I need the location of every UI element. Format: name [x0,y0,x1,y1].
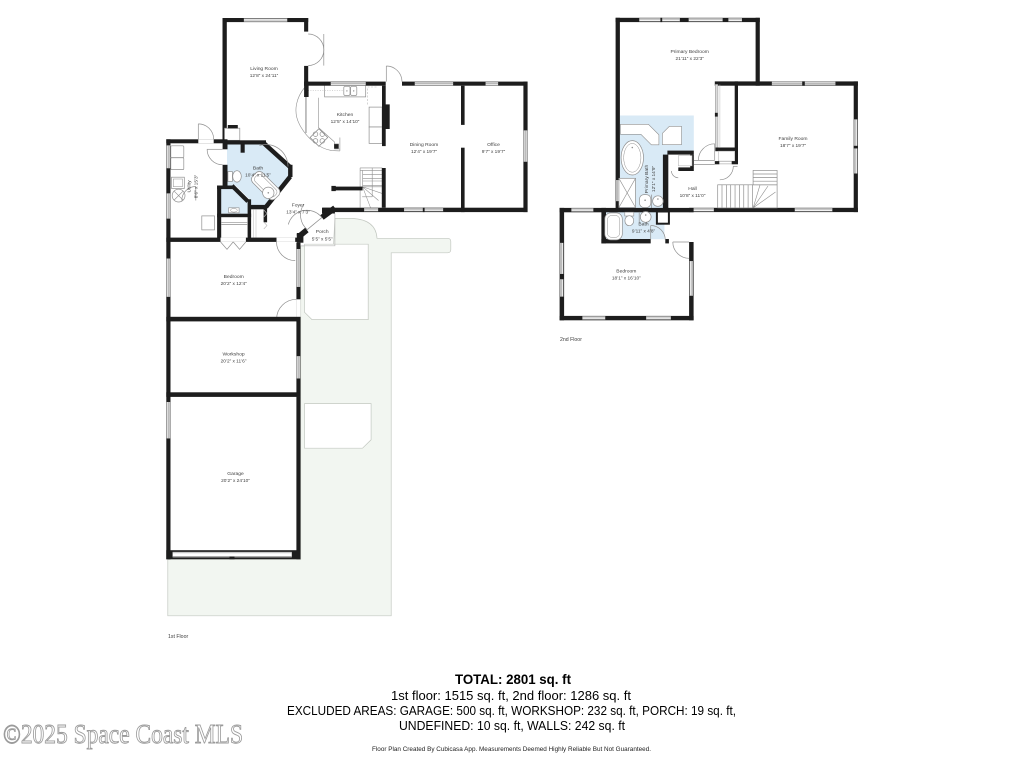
svg-text:21’11” x 22’3”: 21’11” x 22’3” [675,56,704,62]
svg-text:Office: Office [487,142,500,148]
svg-text:Utility: Utility [187,180,193,193]
svg-text:8’6” x 15’3”: 8’6” x 15’3” [194,174,200,198]
svg-text:1st Floor: 1st Floor [168,634,188,640]
svg-text:Foyer: Foyer [292,203,305,209]
svg-text:UNDEFINED: 10 sq. ft, WALLS: 2: UNDEFINED: 10 sq. ft, WALLS: 242 sq. ft [399,718,625,733]
svg-text:©2025 Space Coast MLS: ©2025 Space Coast MLS [3,719,243,749]
svg-text:9’11” x 4’8”: 9’11” x 4’8” [632,228,656,234]
svg-text:13’4” x 7’3”: 13’4” x 7’3” [286,210,310,216]
svg-text:Hall: Hall [688,186,697,192]
svg-text:Primary Bath: Primary Bath [644,164,650,193]
svg-text:TOTAL: 2801 sq. ft: TOTAL: 2801 sq. ft [455,672,572,687]
svg-text:Porch: Porch [316,229,329,235]
svg-text:20’2” x 12’4”: 20’2” x 12’4” [221,281,248,287]
svg-text:12’4” x 19’7”: 12’4” x 19’7” [411,149,438,155]
svg-text:Workshop: Workshop [222,352,244,358]
svg-text:2nd Floor: 2nd Floor [560,337,582,343]
svg-text:Bath: Bath [638,221,648,227]
svg-text:18’1” x 16’10”: 18’1” x 16’10” [612,275,641,281]
svg-text:Living Room: Living Room [250,66,277,72]
svg-text:Family Room: Family Room [778,136,807,142]
svg-text:10’8” x 11’0”: 10’8” x 11’0” [680,193,706,199]
svg-text:12’5” x 14’10”: 12’5” x 14’10” [331,119,360,125]
svg-text:5’5” x 5’5”: 5’5” x 5’5” [312,237,333,243]
svg-text:Bath: Bath [253,165,263,171]
svg-text:20’2” x 11’6”: 20’2” x 11’6” [221,359,247,365]
svg-text:Dining Room: Dining Room [410,142,439,148]
svg-text:10’4” x 11’5”: 10’4” x 11’5” [245,172,271,178]
svg-text:Garage: Garage [227,471,244,477]
svg-text:12’1” x 14’9”: 12’1” x 14’9” [651,166,657,193]
svg-text:Kitchen: Kitchen [337,112,354,118]
svg-text:Bedroom: Bedroom [224,274,244,280]
svg-text:Primary Bedroom: Primary Bedroom [670,49,708,55]
svg-text:18’7” x 19’7”: 18’7” x 19’7” [780,143,807,149]
svg-text:9’7” x 19’7”: 9’7” x 19’7” [482,149,506,155]
svg-text:EXCLUDED AREAS: GARAGE: 500 sq: EXCLUDED AREAS: GARAGE: 500 sq. ft, WORK… [287,703,736,718]
svg-text:20’2” x 24’10”: 20’2” x 24’10” [221,478,250,484]
svg-text:12’8” x 24’11”: 12’8” x 24’11” [250,73,279,79]
svg-text:Bedroom: Bedroom [616,268,636,274]
svg-text:1st floor: 1515 sq. ft, 2nd fl: 1st floor: 1515 sq. ft, 2nd floor: 1286 … [391,688,631,703]
svg-text:Floor Plan Created By Cubicasa: Floor Plan Created By Cubicasa App. Meas… [372,746,651,753]
